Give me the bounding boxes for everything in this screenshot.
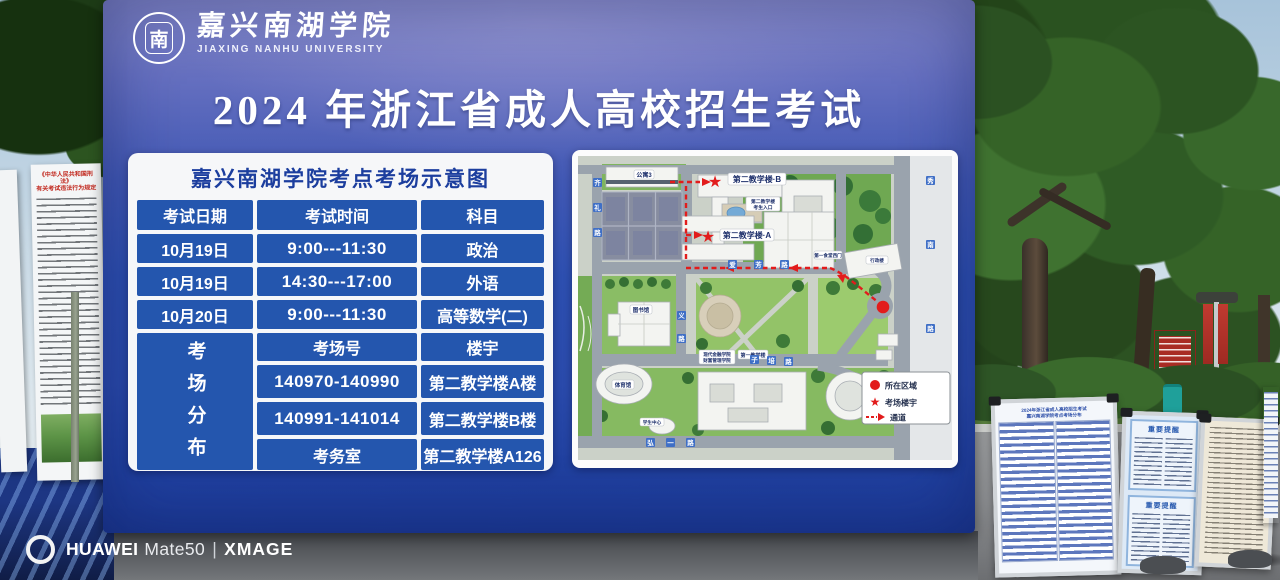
venue-header-room: 考场号: [257, 333, 417, 361]
road-char: 芳: [755, 260, 762, 269]
col-header-date: 考试日期: [137, 200, 253, 230]
teal-bucket: [1163, 384, 1182, 414]
notice-stand: 重要提醒 重要提醒: [1117, 411, 1206, 576]
camera-ring-icon: [26, 535, 55, 564]
road-char: 弘: [647, 439, 654, 447]
legend-label: 考场楼宇: [885, 398, 917, 408]
legend-location-dot-icon: [870, 380, 880, 390]
utility-pole: [71, 292, 79, 482]
road-char: 路: [678, 334, 685, 343]
sports-courts: [602, 192, 682, 260]
table-cell-time: 14:30---17:00: [257, 267, 417, 296]
exam-building-star-icon: ★: [708, 174, 722, 191]
sandbag: [1140, 556, 1186, 574]
table-cell-subject: 外语: [421, 267, 544, 296]
col-header-time: 考试时间: [257, 200, 417, 230]
campus-map: ★ ★ 第二教学楼·B 第二教学楼·A 第二教学楼 考生入口 公寓3 第一食堂西…: [578, 156, 952, 460]
road-char: 义: [677, 311, 685, 320]
legend-star-icon: ★: [870, 395, 881, 409]
camera-watermark: HUAWEI Mate50 | XMAGE: [26, 535, 293, 564]
road-char: 路: [781, 260, 788, 269]
watermark-brand: HUAWEI: [66, 539, 138, 560]
campus-map-panel: ★ ★ 第二教学楼·B 第二教学楼·A 第二教学楼 考生入口 公寓3 第一食堂西…: [572, 150, 958, 468]
label-student-center: 学生中心: [643, 419, 662, 426]
law-poster-title: 《中华人民共和国刑法》: [36, 171, 96, 186]
law-poster-subtitle: 有关考试违法行为规定: [36, 185, 96, 193]
road-char: 一: [667, 440, 674, 447]
label-finance-line1: 现代金融学院: [703, 351, 731, 358]
venue-header-building: 楼宇: [421, 333, 544, 361]
document-text-lines: [1204, 427, 1268, 557]
road-char: 秀: [926, 176, 934, 185]
seal-character: 南: [145, 22, 173, 54]
label-entrance-line2: 考生入口: [753, 204, 772, 211]
important-notice-top: 重要提醒: [1128, 419, 1198, 492]
table-cell-date: 10月19日: [137, 234, 253, 263]
road-char: 路: [785, 357, 792, 366]
notice-header: 重要提醒: [1132, 500, 1190, 512]
photo-scene: 《中华人民共和国刑法》 有关考试违法行为规定 南 嘉兴南湖学院 JIAXING …: [0, 0, 1280, 580]
university-name-en: JIAXING NANHU UNIVERSITY: [197, 44, 395, 55]
road-char: 培: [768, 356, 775, 365]
label-teaching-b: 第二教学楼·B: [733, 174, 782, 184]
distribution-merged-cell: 考场分布: [137, 333, 253, 470]
label-entrance-line1: 第二教学楼: [751, 198, 775, 205]
road-char: 齐: [594, 178, 601, 187]
university-name-cn: 嘉兴南湖学院: [196, 12, 396, 42]
road-char: 路: [594, 228, 601, 237]
university-seal-icon: 南: [133, 12, 185, 64]
map-legend: 所在区域 ★ 考场楼宇 通道: [862, 372, 950, 424]
venue-cell-rooms: 140991-141014: [257, 402, 417, 435]
sandbag: [1228, 550, 1272, 568]
road-char: 南: [927, 240, 934, 249]
watermark-separator: |: [212, 539, 217, 560]
seat-table-stripes: [999, 421, 1113, 562]
right-poster-partial: [1262, 386, 1280, 524]
venue-cell-building: 第二教学楼A楼: [421, 365, 544, 398]
table-cell-time: 9:00---11:30: [257, 234, 417, 263]
table-cell-time: 9:00---11:30: [257, 300, 417, 329]
watermark-model: Mate50: [144, 539, 205, 560]
road-char: 子: [751, 356, 758, 364]
schedule-panel: 嘉兴南湖学院考点考场示意图 考试日期 考试时间 科目 10月19日 9:00--…: [128, 153, 553, 471]
venue-cell-building: 第二教学楼A126: [421, 439, 544, 470]
current-location-dot: [877, 301, 890, 314]
venue-cell-rooms: 140970-140990: [257, 365, 417, 398]
table-cell-date: 10月20日: [137, 300, 253, 329]
road-char: 路: [927, 324, 934, 333]
venue-cell-building: 第二教学楼B楼: [421, 402, 544, 435]
venue-cell-office: 考务室: [257, 439, 417, 470]
label-gym: 体育馆: [615, 381, 632, 389]
law-poster-text-lines: [36, 197, 100, 408]
road-char: 路: [687, 438, 694, 447]
table-cell-subject: 政治: [421, 234, 544, 263]
label-canteen-west-gate: 第一食堂西门: [814, 252, 842, 259]
label-apartment3: 公寓3: [636, 171, 652, 179]
schedule-table: 考试日期 考试时间 科目 10月19日 9:00---11:30 政治 10月1…: [137, 200, 544, 470]
exam-billboard: 南 嘉兴南湖学院 JIAXING NANHU UNIVERSITY 2024 年…: [103, 0, 975, 533]
label-teaching-a: 第二教学楼·A: [723, 230, 772, 240]
label-library: 图书馆: [633, 306, 650, 314]
legend-label: 所在区域: [884, 381, 917, 391]
notice-header: 重要提醒: [1135, 424, 1193, 436]
university-logo-group: 南 嘉兴南湖学院 JIAXING NANHU UNIVERSITY: [133, 12, 395, 64]
label-admin: 行政楼: [869, 257, 884, 264]
notice-text-stripes: [1133, 437, 1192, 487]
legend-label: 通道: [890, 413, 906, 423]
watermark-tech: XMAGE: [224, 539, 293, 560]
left-law-poster: 《中华人民共和国刑法》 有关考试违法行为规定: [31, 163, 108, 480]
table-cell-date: 10月19日: [137, 267, 253, 296]
road-char: 爱: [729, 260, 736, 269]
table-cell-subject: 高等数学(二): [421, 300, 544, 329]
schedule-panel-title: 嘉兴南湖学院考点考场示意图: [137, 163, 544, 193]
seat-allocation-stand: 2024年浙江省成人高校招生考试 嘉兴南湖学院考点考场分布: [991, 396, 1122, 577]
exam-building-star-icon: ★: [701, 229, 715, 246]
road-char: 礼: [594, 203, 601, 212]
col-header-subject: 科目: [421, 200, 544, 230]
billboard-title: 2024 年浙江省成人高校招生考试: [103, 76, 975, 136]
label-finance-line2: 财富管理学院: [702, 357, 731, 364]
